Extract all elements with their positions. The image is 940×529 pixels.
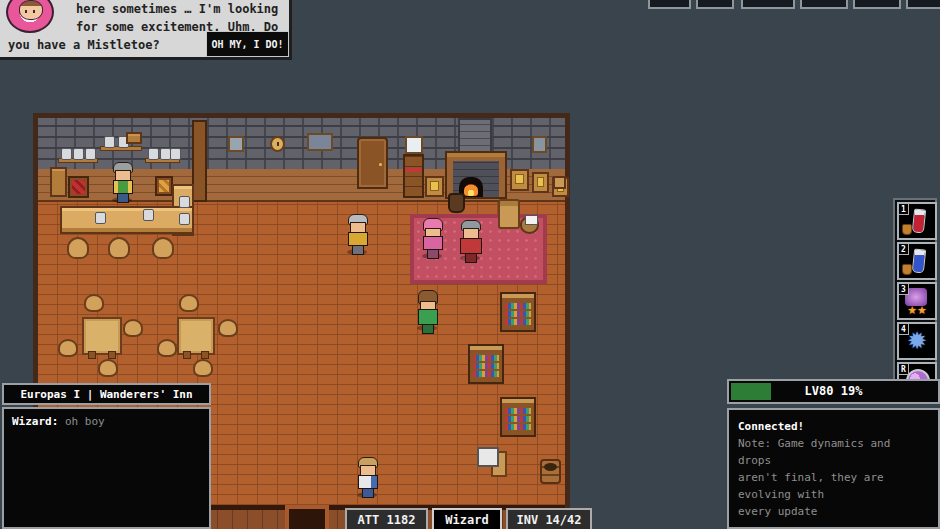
chat-log[interactable]: Wizard: oh boy [2,407,211,529]
mug-icon [95,212,106,224]
sign-board [477,447,507,480]
basket [520,217,539,234]
mug-icon [143,209,154,221]
barrel [540,459,561,484]
chat-header: Europas I | Wanderers' Inn [2,383,211,405]
game-screen: here sometimes … I'm looking for some ex… [0,0,940,529]
top-slot-5[interactable] [853,0,901,9]
slot-key: 2 [899,244,909,255]
bar-stool [108,237,130,259]
fireplace [445,151,507,199]
dialog-answer-button[interactable]: OH MY, I DO! [206,31,289,57]
system-line: every update [738,503,929,520]
dialog-box: here sometimes … I'm looking for some ex… [0,0,292,60]
kettle [448,193,465,213]
top-slot-1[interactable] [648,0,691,9]
stool [157,339,177,357]
stool [84,294,104,312]
stool [193,359,213,377]
goods-crate [425,176,444,197]
attack-stat-button[interactable]: ATT 1182 [345,508,428,529]
slot-key: 3 [899,284,909,295]
xp-bar: LV80 19% [727,379,940,404]
entrance-gap[interactable] [285,505,329,529]
jar-icon [104,136,115,148]
top-slot-4[interactable] [800,0,848,9]
wall-painting [307,133,333,151]
chat-author: Wizard: [12,415,58,428]
chair [498,199,520,229]
table [177,317,215,355]
goods-crate [510,169,529,191]
mug-icon [179,196,190,208]
skill-hotbar: 1 2 3 ★★ 4 ✹ R [893,198,937,404]
system-line: aren't final, they are evolving with [738,469,929,503]
jar-icon [73,148,84,160]
jar-icon [61,148,72,160]
slot-key: 4 [899,324,909,335]
npc-player[interactable] [355,457,379,497]
level-label: LV80 19% [729,384,938,398]
npc-knight[interactable] [345,214,369,254]
bookshelf [468,344,504,384]
potion-badge-icon [902,264,912,275]
chimney [458,118,492,154]
hotbar-slot-1[interactable]: 1 [897,202,937,240]
red-potion-icon [912,208,926,233]
chat-message: oh boy [65,415,105,428]
system-line: Connected! [738,418,929,435]
wall-picture [532,136,547,153]
slot-key: R [899,364,909,375]
jar-icon [85,148,96,160]
top-slot-2[interactable] [696,0,734,9]
hotbar-slot-4[interactable]: 4 ✹ [897,322,937,360]
npc-portrait [6,0,56,35]
stool [123,319,143,337]
npc-red-robe[interactable] [458,220,482,260]
hotbar-slot-2[interactable]: 2 [897,242,937,280]
fire-icon [464,184,478,196]
jar-icon [170,148,181,160]
bookshelf [500,397,536,437]
dialog-line-3: you have a Mistletoe? [8,38,160,52]
npc-green-dress[interactable] [415,290,439,330]
crate [126,132,142,144]
top-slot-3[interactable] [741,0,795,9]
inventory-button[interactable]: INV 14/42 [506,508,592,529]
stool [58,339,78,357]
goods-crate [532,172,549,193]
npc-pink-girl[interactable] [420,218,444,258]
wall-picture [228,136,244,152]
class-button[interactable]: Wizard [432,508,502,529]
bar-stool [67,237,89,259]
wall-plaque [553,176,566,189]
meat-display [68,176,89,198]
table [82,317,122,355]
slot-key: 1 [899,204,909,215]
crate-stack [50,167,67,197]
back-door[interactable] [357,137,388,189]
bar-counter [60,206,194,234]
wall-post [192,120,207,202]
bookshelf [500,292,536,332]
npc-bartender[interactable] [110,162,134,202]
mug-icon [179,213,190,225]
blue-potion-icon [912,248,926,273]
bread-display [155,176,173,196]
wall-clock [270,136,285,152]
dialog-line-1: here sometimes … I'm looking [76,2,278,16]
jar-icon [148,148,159,160]
cabinet [403,154,424,198]
top-slot-6[interactable] [906,0,940,9]
potion-badge-icon [902,224,912,235]
bar-stool [152,237,174,259]
system-line: Note: Game dynamics and drops [738,435,929,469]
hotbar-slot-3[interactable]: 3 ★★ [897,282,937,320]
stool [179,294,199,312]
wall-picture [405,136,423,154]
system-message-panel: Connected! Note: Game dynamics and drops… [727,408,940,529]
stool [218,319,238,337]
stool [98,359,118,377]
